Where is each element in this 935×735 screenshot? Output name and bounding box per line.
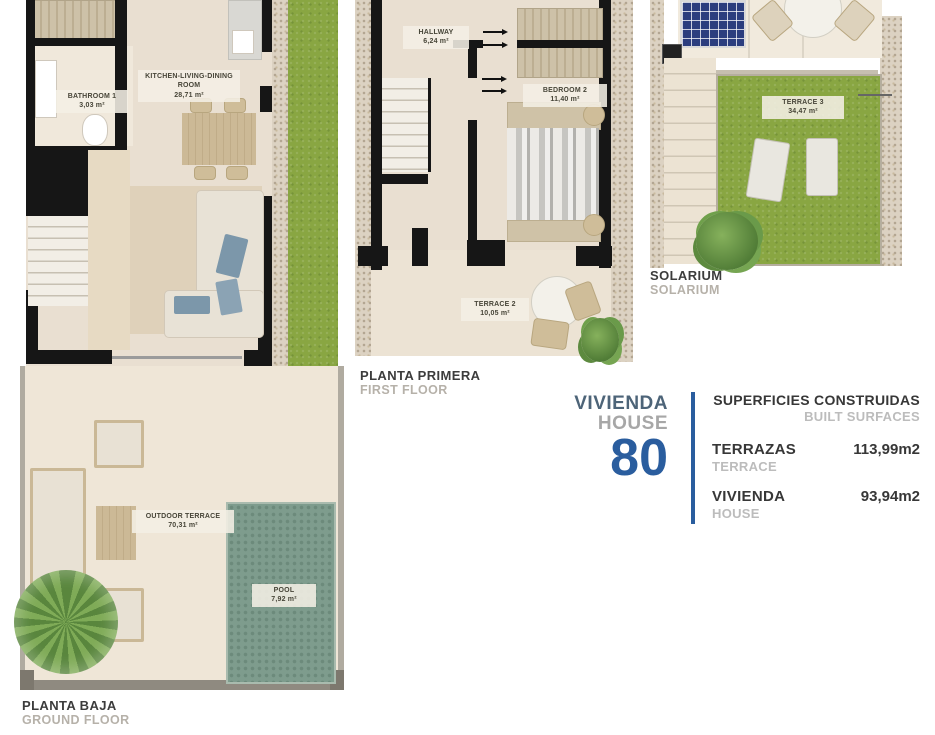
ground-floor-plan: BATHROOM 1 3,03 m² KITCHEN-LIVING-DINING…: [20, 0, 345, 730]
wall: [576, 246, 612, 266]
antenna-line: [858, 94, 892, 96]
room-name: POOL: [255, 586, 313, 595]
house-id-block: VIVIENDA HOUSE 80: [528, 394, 668, 483]
wall: [358, 246, 388, 266]
hall-floor: [88, 150, 130, 350]
gravel-strip: [611, 0, 633, 362]
wall: [26, 150, 88, 216]
sun-lounger: [806, 138, 838, 196]
room-area: 6,24 m²: [406, 37, 466, 46]
room-label-bathroom-1: BATHROOM 1 3,03 m²: [56, 90, 128, 113]
outdoor-table: [96, 506, 136, 560]
room-label-hallway: HALLWAY 6,24 m²: [403, 26, 469, 49]
room-name: BEDROOM 2: [526, 86, 604, 95]
room-area: 34,47 m²: [765, 107, 841, 116]
dining-chair: [226, 166, 248, 180]
plan-title-ground: PLANTA BAJA: [22, 698, 117, 713]
plan-title-first: PLANTA PRIMERA: [360, 368, 480, 383]
wall: [517, 40, 603, 48]
solarium-plan: TERRACE 3 34,47 m² SOLARIUM SOLARIUM: [650, 0, 905, 300]
wall: [26, 38, 127, 46]
room-label-bedroom-2: BEDROOM 2 11,40 m²: [523, 84, 607, 107]
surfaces-block: SUPERFICIES CONSTRUIDAS BUILT SURFACES T…: [712, 392, 920, 521]
plan-subtitle-ground: GROUND FLOOR: [22, 713, 130, 727]
storage-unit: [33, 0, 127, 42]
gravel-strip: [880, 16, 902, 266]
nightstand: [583, 214, 605, 236]
wall: [244, 350, 260, 366]
nightstand: [583, 104, 605, 126]
potted-plant: [581, 318, 619, 362]
wall: [468, 120, 477, 244]
first-floor-plan: HALLWAY 6,24 m² BEDROOM 2 11,40 m² TERRA…: [355, 0, 640, 400]
surface-label-en: TERRACE: [712, 459, 920, 474]
toilet: [82, 114, 108, 146]
room-area: 70,31 m²: [135, 521, 231, 530]
room-name: BATHROOM 1: [59, 92, 125, 101]
wall: [412, 228, 428, 266]
outdoor-chair: [94, 420, 144, 468]
wall: [260, 86, 272, 112]
dining-table: [182, 113, 256, 165]
room-name: HALLWAY: [406, 28, 466, 37]
bed: [507, 128, 599, 220]
room-name: KITCHEN-LIVING-DINING ROOM: [141, 72, 237, 91]
terrace-wall: [20, 670, 34, 690]
surface-value: 113,99m2: [853, 441, 920, 458]
sliding-door: [112, 356, 242, 359]
gravel-strip: [272, 0, 288, 366]
terrace-chair: [530, 318, 570, 351]
gravel-strip: [650, 0, 664, 268]
side-garden: [288, 0, 338, 366]
accent-divider: [691, 392, 695, 524]
staircase: [28, 216, 91, 306]
surface-label-es: TERRAZAS: [712, 441, 796, 458]
bathroom-sink: [35, 60, 57, 118]
surface-value: 93,94m2: [861, 488, 920, 505]
surface-label-en: HOUSE: [712, 506, 920, 521]
house-number: 80: [528, 434, 668, 483]
surfaces-title-es: SUPERFICIES CONSTRUIDAS: [712, 392, 920, 408]
staircase: [382, 78, 431, 172]
surface-label-es: VIVIENDA: [712, 488, 785, 505]
door-swing-arrow: [482, 90, 502, 92]
room-area: 3,03 m²: [59, 101, 125, 110]
wall: [115, 0, 127, 150]
plan-title-solarium: SOLARIUM: [650, 268, 723, 283]
potted-plant: [696, 212, 758, 270]
room-label-terrace-2: TERRACE 2 10,05 m²: [461, 298, 529, 321]
room-area: 10,05 m²: [464, 309, 526, 318]
room-label-outdoor-terrace: OUTDOOR TERRACE 70,31 m²: [132, 510, 234, 533]
room-name: TERRACE 3: [765, 98, 841, 107]
door-swing-arrow: [483, 31, 503, 33]
door-swing-arrow: [482, 78, 502, 80]
wall: [382, 174, 428, 184]
wall: [26, 350, 76, 364]
wall: [371, 0, 382, 270]
dining-chair: [194, 166, 216, 180]
wall-line: [748, 0, 750, 58]
terrace-wall: [338, 366, 344, 686]
palm-tree: [14, 570, 118, 674]
solar-panel: [680, 0, 746, 48]
gravel-strip: [355, 0, 371, 356]
room-name: TERRACE 2: [464, 300, 526, 309]
room-label-kitchen-living-dining: KITCHEN-LIVING-DINING ROOM 28,71 m²: [138, 70, 240, 102]
room-area: 28,71 m²: [141, 91, 237, 100]
house-label-es: VIVIENDA: [528, 394, 668, 414]
door-swing-arrow: [483, 44, 503, 46]
wall: [468, 48, 477, 78]
room-area: 7,92 m²: [255, 595, 313, 604]
outdoor-sofa: [30, 468, 86, 586]
kitchen-sink: [232, 30, 254, 54]
surface-row-house: VIVIENDA 93,94m2: [712, 488, 920, 505]
wall: [26, 0, 35, 150]
surfaces-title-en: BUILT SURFACES: [712, 409, 920, 424]
room-area: 11,40 m²: [526, 95, 604, 104]
room-label-pool: POOL 7,92 m²: [252, 584, 316, 607]
room-label-terrace-3: TERRACE 3 34,47 m²: [762, 96, 844, 119]
plan-subtitle-first: FIRST FLOOR: [360, 383, 448, 397]
wall: [467, 240, 505, 266]
cushion: [174, 296, 210, 314]
wall: [76, 350, 112, 364]
plan-subtitle-solarium: SOLARIUM: [650, 283, 720, 297]
surface-row-terraces: TERRAZAS 113,99m2: [712, 441, 920, 458]
wall: [258, 334, 272, 366]
room-name: OUTDOOR TERRACE: [135, 512, 231, 521]
floorplan-sheet: BATHROOM 1 3,03 m² KITCHEN-LIVING-DINING…: [0, 0, 935, 735]
